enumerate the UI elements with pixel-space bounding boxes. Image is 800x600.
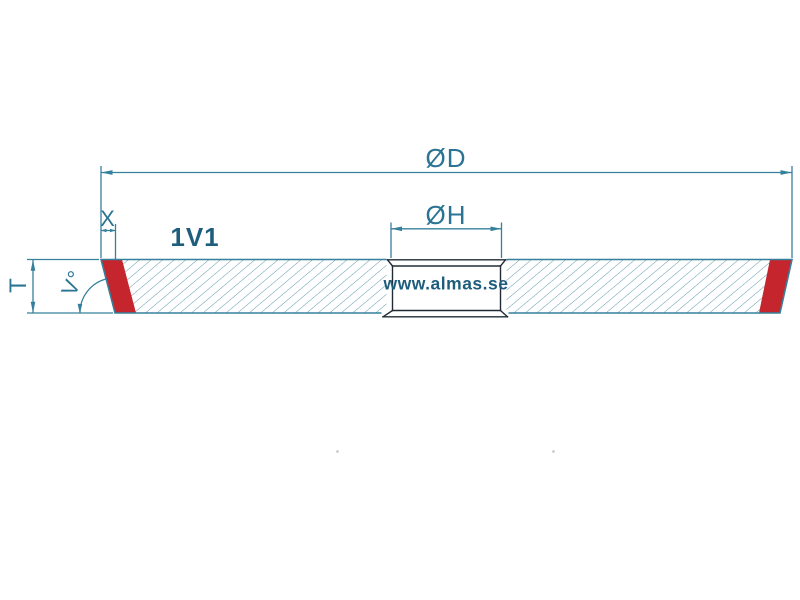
thickness-label: T <box>7 277 31 293</box>
speck-right <box>552 450 555 453</box>
technical-drawing-page: ØD ØH X T V° 1V1 www.almas.se <box>0 0 800 600</box>
speck-left <box>336 450 339 453</box>
watermark-text: www.almas.se <box>384 275 509 293</box>
hole-diameter-label: ØH <box>426 202 467 228</box>
wheel-type-label: 1V1 <box>170 224 219 250</box>
rim-width-label: X <box>100 208 116 230</box>
wheel-cross-section-drawing <box>0 0 800 600</box>
outer-diameter-label: ØD <box>426 145 467 171</box>
